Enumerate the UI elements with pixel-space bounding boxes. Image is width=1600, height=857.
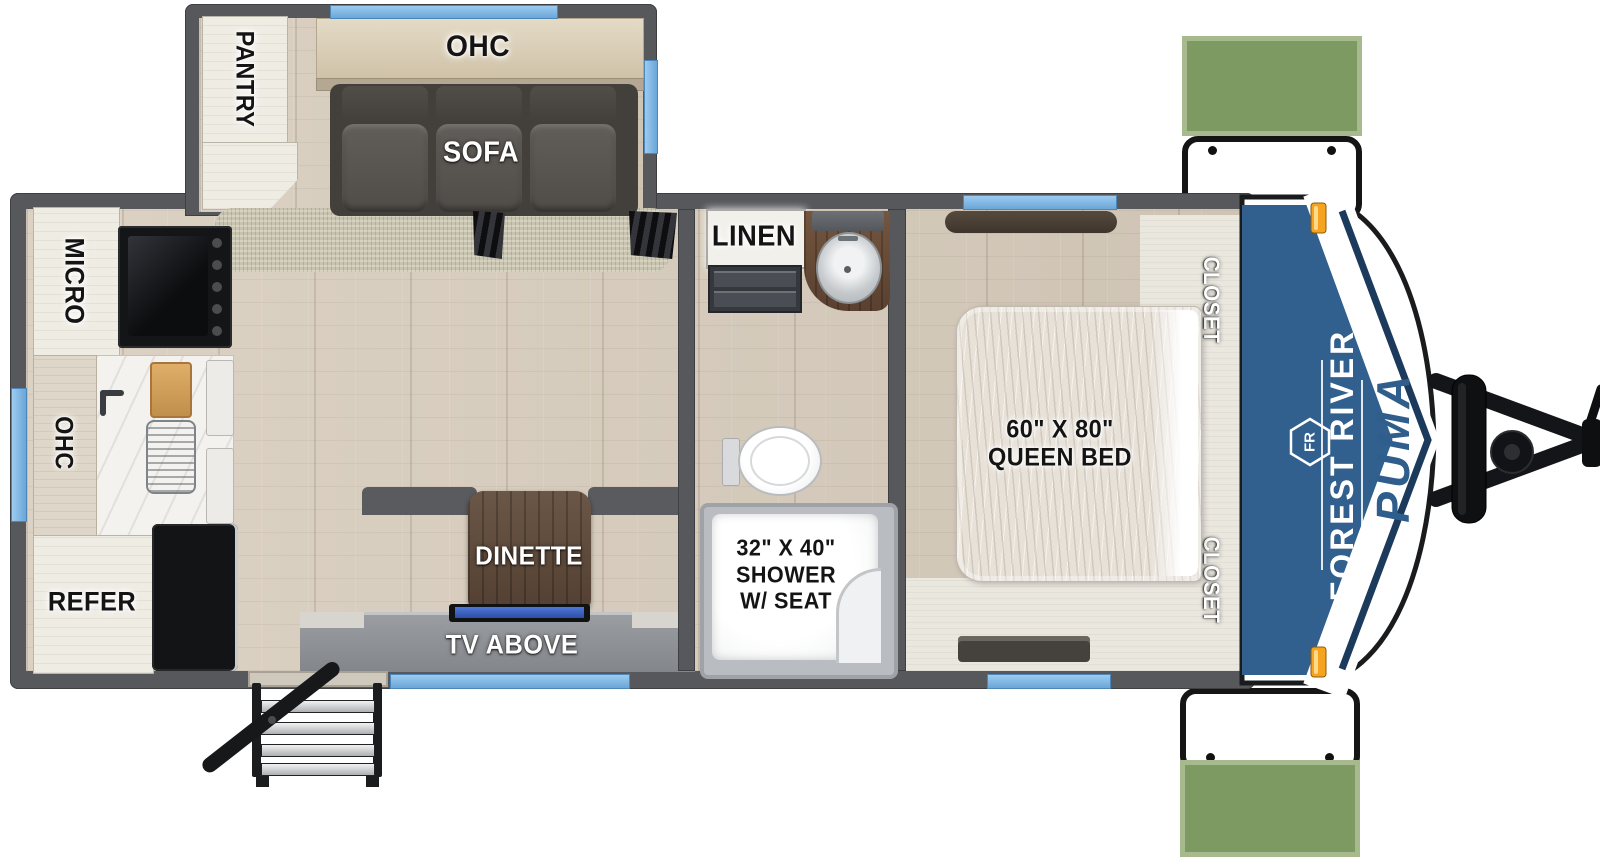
vanity-shelf (812, 211, 884, 231)
outside-storage-badge-top: OUTSIDE STORAGE (1182, 36, 1362, 136)
dinette-label: DINETTE (475, 541, 583, 572)
bathroom-wall-left (678, 209, 695, 671)
sofa-seat-cushion (530, 124, 616, 212)
tv-above-label: TV ABOVE (446, 630, 579, 661)
kitchen-faucet-stem (100, 390, 106, 416)
tongue-hitch (1436, 375, 1600, 523)
sofa-label: SOFA (443, 137, 519, 170)
range-burner (212, 260, 222, 270)
shower-name-label: SHOWER (736, 562, 836, 589)
area-rug (215, 208, 670, 272)
window-slideout-top (330, 5, 558, 19)
cabinet-door (206, 360, 234, 436)
bed-name-label: QUEEN BED (988, 444, 1132, 473)
ohc-kitchen-label: OHC (49, 416, 78, 470)
dinette-bench-back (362, 487, 477, 515)
sofa-seat-cushion (342, 124, 428, 212)
window-living-bottom (390, 674, 630, 689)
sofa-back-cushion (342, 86, 428, 124)
window-bedroom-bottom (987, 674, 1111, 689)
sink-drain (844, 266, 851, 273)
linen-drawer-face (714, 291, 796, 307)
bed-bench (958, 636, 1090, 662)
sofa-back-cushion (436, 86, 522, 124)
manufacturer-label: FOREST RIVER (1324, 329, 1360, 601)
linen-label: LINEN (712, 221, 796, 254)
latch-dot (1208, 146, 1217, 155)
bed-size-label: 60" X 80" (1006, 416, 1114, 445)
floorplan-canvas: PANTRY OHC SOFA MICRO OHC REFER DINETTE … (0, 0, 1600, 857)
cutting-board (150, 362, 192, 418)
sofa-back-cushion (530, 86, 616, 124)
window-slideout-side (644, 60, 658, 154)
front-cap-and-hitch: FR FOREST RIVER PUMA (1190, 175, 1600, 705)
coupler (1582, 419, 1600, 467)
toilet-seat-ring (750, 436, 810, 486)
range-burner (212, 282, 222, 292)
latch-dot (1327, 146, 1336, 155)
entry-step-tread (261, 744, 375, 757)
entry-step-foot (366, 776, 379, 787)
outside-storage-badge-bottom: OUTSIDE STORAGE (1180, 760, 1360, 857)
marker-light-top (1311, 203, 1326, 233)
sink-faucet (838, 236, 858, 241)
entry-step-tread (261, 722, 375, 735)
bedside-wood-top (1142, 222, 1182, 310)
micro-label: MICRO (59, 238, 90, 325)
refer-label: REFER (48, 587, 136, 618)
fr-logo-monogram: FR (1302, 432, 1319, 452)
cabinet-door (206, 448, 234, 524)
pleated-shade (473, 211, 505, 259)
model-label: PUMA (1367, 371, 1419, 522)
tongue-jack (1452, 375, 1486, 523)
range-glass (128, 236, 208, 336)
marker-light-bottom (1311, 647, 1326, 677)
shower-feature-label: W/ SEAT (740, 588, 832, 615)
half-wall-cap (300, 612, 364, 628)
range-burner (212, 326, 222, 336)
dinette-bench-back (588, 487, 683, 515)
pantry-label: PANTRY (230, 31, 259, 128)
nightstand-top (1046, 234, 1142, 308)
ohc-slideout-label: OHC (446, 30, 510, 64)
refrigerator (152, 524, 238, 671)
grab-handle-bolt (268, 716, 276, 724)
window-bedroom-top (963, 195, 1117, 210)
kitchen-sink (146, 420, 196, 494)
bedroom-valance (945, 211, 1117, 233)
badge-fill (1187, 41, 1357, 131)
entry-step-tread (261, 763, 375, 776)
range-burner (212, 238, 222, 248)
linen-drawer-face (714, 271, 796, 287)
front-cap-graphics: FR FOREST RIVER PUMA (1242, 189, 1428, 691)
window-left-wall (11, 388, 27, 522)
range-burner (212, 304, 222, 314)
badge-fill (1185, 765, 1355, 852)
accordion-door (629, 211, 677, 259)
tv-screen (455, 607, 584, 618)
entry-step-foot (256, 776, 269, 787)
shower-size-label: 32" X 40" (736, 535, 835, 562)
